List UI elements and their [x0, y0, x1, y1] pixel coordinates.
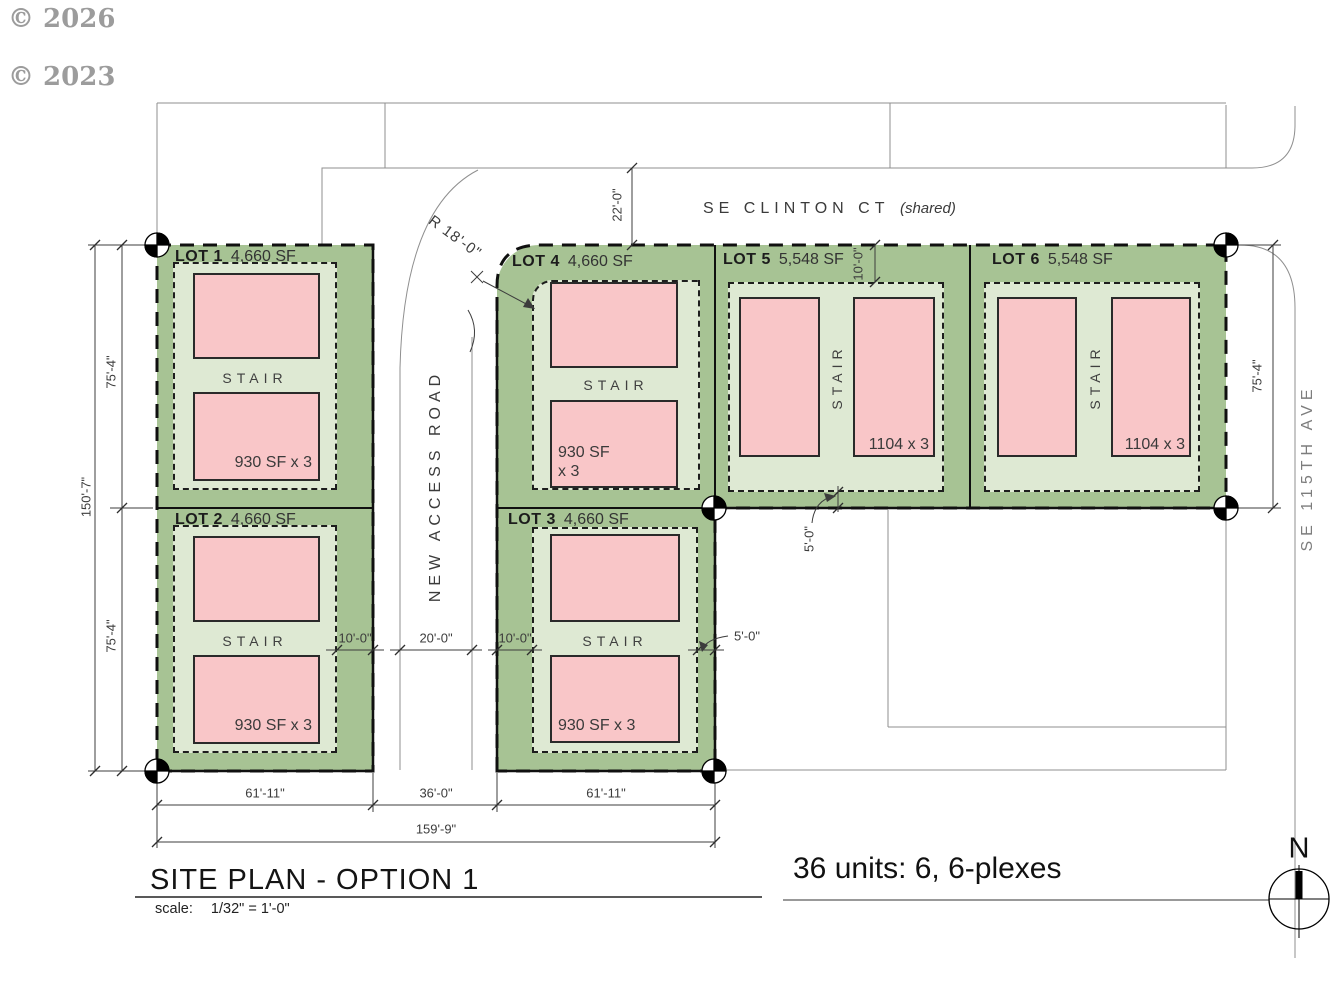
- unit-label: 930 SF x 3: [558, 443, 676, 481]
- street-label-115th-ave: SE 115TH AVE: [1299, 384, 1317, 551]
- dim-lot3-setback-5: 5'-0": [734, 629, 760, 644]
- north-arrow-icon: [1269, 865, 1329, 938]
- stair-label: STAIR: [829, 344, 845, 409]
- units-summary: 36 units: 6, 6-plexes: [793, 852, 1062, 886]
- building: [997, 297, 1077, 457]
- dim-lot5-setback-10: 10'-0": [851, 247, 866, 280]
- unit-label: 930 SF x 3: [193, 453, 312, 472]
- lot-label: LOT 4 4,660 SF: [512, 253, 633, 271]
- street-label-clinton: SE CLINTON CT (shared): [703, 200, 956, 218]
- building: [550, 534, 680, 622]
- scale-label: scale:: [155, 901, 193, 917]
- north-label: N: [1289, 833, 1310, 866]
- dim-road-width-20: 20'-0": [419, 631, 452, 646]
- lot-name: LOT 6: [992, 251, 1040, 269]
- lot-5: LOT 5 5,548 SF STAIR 1104 x 3: [715, 245, 970, 508]
- building: [193, 536, 320, 622]
- lot-label: LOT 5 5,548 SF: [723, 251, 844, 269]
- building: [550, 282, 678, 368]
- scale-note: scale: 1/32" = 1'-0": [155, 901, 290, 917]
- building: [853, 297, 935, 457]
- lot-area: 4,660 SF: [568, 253, 633, 271]
- dim-street-width: 22'-0": [610, 188, 625, 221]
- unit-label: 1104 x 3: [1111, 435, 1185, 454]
- lot-label: LOT 6 5,548 SF: [992, 251, 1113, 269]
- street-name: SE CLINTON CT: [703, 200, 890, 217]
- stair-label: STAIR: [173, 370, 337, 386]
- stair-label: STAIR: [1087, 344, 1103, 409]
- site-plan-sheet: © 2026 © 2023 LOT 1 4,660 SF STAIR 930 S…: [0, 0, 1344, 1008]
- stair-label: STAIR: [532, 633, 698, 649]
- lot-1: LOT 1 4,660 SF STAIR 930 SF x 3: [157, 245, 373, 508]
- dim-bottom-center: 36'-0": [419, 786, 452, 801]
- building: [1111, 297, 1191, 457]
- dim-bottom-total: 159'-9": [416, 822, 456, 837]
- dim-bottom-left: 61'-11": [245, 786, 284, 801]
- unit-label: 930 SF x 3: [193, 716, 312, 735]
- dim-right-height: 75'-4": [1250, 359, 1265, 392]
- lot-name: LOT 5: [723, 251, 771, 269]
- lot-4: LOT 4 4,660 SF STAIR 930 SF x 3: [497, 245, 715, 508]
- building: [193, 273, 320, 359]
- dim-lot5-setback-5: 5'-0": [802, 526, 817, 552]
- lot-area: 5,548 SF: [779, 251, 844, 269]
- dim-left-upper: 75'-4": [104, 355, 119, 388]
- street-label-access-road: NEW ACCESS ROAD: [427, 370, 445, 602]
- dim-setback-right-10: 10'-0": [498, 631, 531, 646]
- stair-label: STAIR: [532, 377, 700, 393]
- stair-label: STAIR: [173, 633, 337, 649]
- street-suffix: (shared): [900, 200, 956, 217]
- copyright-watermark-2023: © 2023: [8, 62, 115, 92]
- lot-6: LOT 6 5,548 SF STAIR 1104 x 3: [970, 245, 1226, 508]
- dim-left-lower: 75'-4": [104, 619, 119, 652]
- dim-site-height: 150'-7": [79, 477, 94, 517]
- sheet-title: SITE PLAN - OPTION 1: [150, 864, 479, 897]
- building: [739, 297, 820, 457]
- scale-value: 1/32" = 1'-0": [211, 901, 290, 917]
- unit-label: 1104 x 3: [853, 435, 929, 454]
- unit-label: 930 SF x 3: [558, 716, 680, 735]
- lot-name: LOT 4: [512, 253, 560, 271]
- copyright-watermark-2026: © 2026: [8, 4, 115, 34]
- dim-bottom-right: 61'-11": [586, 786, 625, 801]
- dim-setback-left-10: 10'-0": [338, 631, 371, 646]
- dim-corner-radius: R 18'-0": [425, 212, 485, 262]
- lot-area: 5,548 SF: [1048, 251, 1113, 269]
